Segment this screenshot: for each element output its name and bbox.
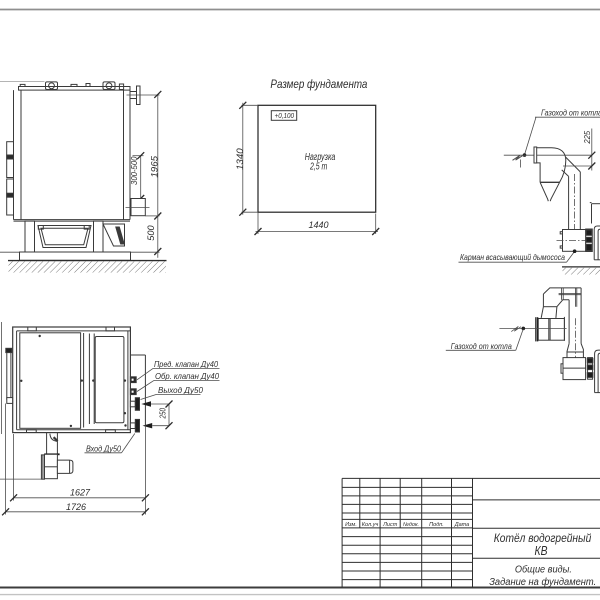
svg-text:250: 250 (159, 408, 168, 420)
svg-text:№док.: №док. (403, 522, 419, 528)
svg-text:Лист: Лист (382, 522, 398, 528)
svg-text:1726: 1726 (66, 502, 86, 512)
svg-text:Общие виды.: Общие виды. (515, 563, 572, 575)
svg-text:Газоход от котла: Газоход от котла (451, 341, 512, 351)
svg-text:Задание на фундамент.: Задание на фундамент. (489, 576, 596, 588)
svg-text:1965: 1965 (149, 155, 159, 178)
svg-text:Кол.уч: Кол.уч (362, 522, 379, 528)
svg-text:1440: 1440 (308, 220, 328, 230)
svg-text:1340: 1340 (235, 148, 245, 170)
svg-text:+0,100: +0,100 (275, 113, 295, 120)
svg-text:Подп.: Подп. (429, 522, 444, 528)
svg-text:300-500: 300-500 (129, 156, 139, 185)
svg-text:Газоход от котла: Газоход от котла (541, 108, 600, 118)
svg-text:Выход Ду50: Выход Ду50 (158, 386, 204, 395)
svg-text:КВ: КВ (535, 543, 548, 558)
svg-text:Карман всасывающий дымососа: Карман всасывающий дымососа (460, 252, 565, 262)
svg-text:Изм.: Изм. (345, 522, 357, 528)
svg-text:2,5 т: 2,5 т (309, 161, 327, 172)
svg-text:500: 500 (146, 225, 156, 240)
svg-text:Вход Ду50: Вход Ду50 (86, 444, 121, 453)
svg-text:Размер фундамента: Размер фундамента (270, 77, 367, 91)
svg-text:1627: 1627 (70, 488, 91, 498)
svg-text:Дата: Дата (454, 522, 470, 528)
svg-text:225: 225 (582, 131, 592, 145)
svg-text:Обр. клапан Ду40: Обр. клапан Ду40 (155, 372, 220, 381)
svg-text:Пред. клапан Ду40: Пред. клапан Ду40 (154, 360, 219, 369)
